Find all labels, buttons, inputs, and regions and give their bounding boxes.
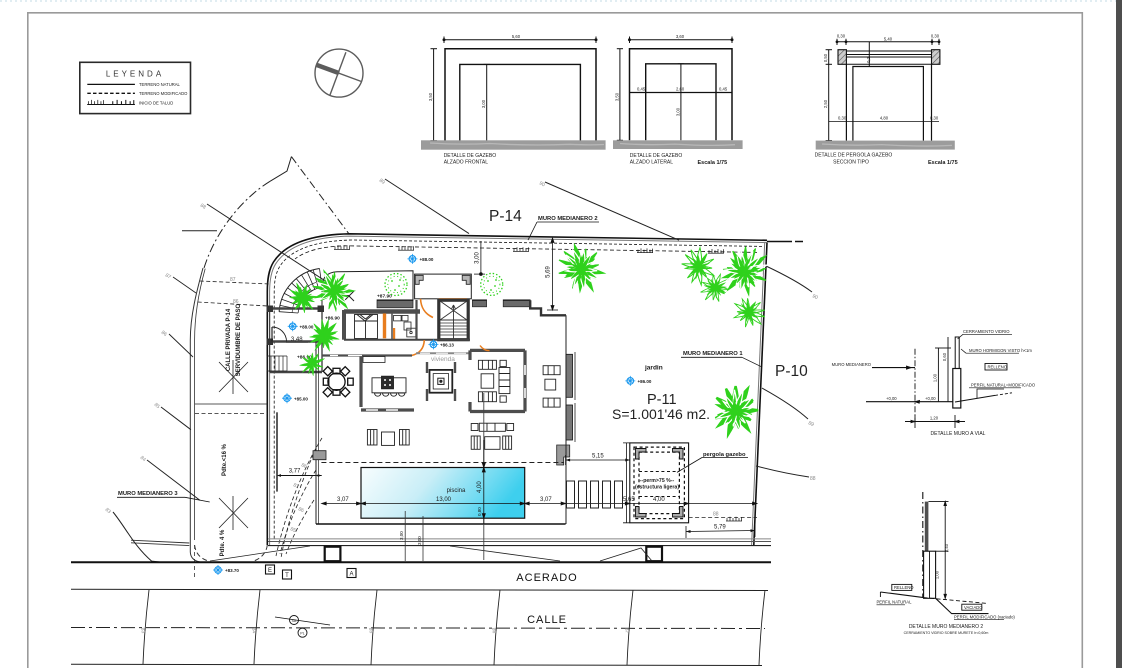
svg-text:SERVIDUMBRE DE PASO: SERVIDUMBRE DE PASO [236,303,242,376]
svg-text:0,30: 0,30 [837,34,846,39]
svg-text:ACERADO: ACERADO [516,572,577,584]
svg-text:TERRENO MODIFICADO: TERRENO MODIFICADO [139,91,188,96]
svg-text:+83.70: +83.70 [225,568,239,573]
svg-text:RELLENO: RELLENO [894,585,914,590]
svg-text:2,50: 2,50 [823,99,828,108]
svg-text:CERRAMIENTO VIDRIO SOBRE MURET: CERRAMIENTO VIDRIO SOBRE MURETE h<0,60m [904,631,989,635]
svg-text:PERFIL NATURAL=MODIFICADO: PERFIL NATURAL=MODIFICADO [971,383,1036,388]
svg-text:2,60: 2,60 [676,87,685,92]
svg-text:Pdte. 4 %: Pdte. 4 % [220,529,226,556]
svg-text:DETALLE DE PERGOLA GAZEBO: DETALLE DE PERGOLA GAZEBO [815,153,893,159]
svg-text:3,07: 3,07 [337,497,349,503]
svg-text:0,30: 0,30 [838,116,847,121]
svg-text:jardin: jardin [644,365,663,372]
svg-text:MURO MEDIANERO 2: MURO MEDIANERO 2 [538,216,598,222]
svg-text:PL: PL [300,632,304,636]
svg-text:TERRENO NATURAL: TERRENO NATURAL [139,82,181,87]
svg-text:S=1.001'46 m2.: S=1.001'46 m2. [612,406,710,422]
svg-text:vivienda: vivienda [431,356,455,363]
svg-text:PERFIL MODIFICADO (vaciado): PERFIL MODIFICADO (vaciado) [954,615,1015,620]
svg-text:3,00: 3,00 [676,107,681,116]
svg-text:(estructura ligera): (estructura ligera) [635,485,679,491]
svg-text:3,48: 3,48 [291,337,303,343]
svg-text:MURO HORMIGON VISTO h<1m: MURO HORMIGON VISTO h<1m [969,348,1032,353]
svg-text:+86.90: +86.90 [325,316,340,322]
svg-text:CALLE PRIVADA P-14: CALLE PRIVADA P-14 [226,308,232,371]
svg-text:P-14: P-14 [489,208,522,225]
svg-text:3,50: 3,50 [428,92,433,101]
svg-text:DETALLE MURO MEDIANERO 2: DETALLE MURO MEDIANERO 2 [909,624,984,630]
svg-text:+88.00: +88.00 [300,325,314,330]
svg-text:0,30: 0,30 [930,116,939,121]
svg-text:--perm>75 %--: --perm>75 %-- [640,478,675,484]
svg-text:MURO MEDIANERO 3: MURO MEDIANERO 3 [118,491,178,497]
svg-text:ALZADO FRONTAL: ALZADO FRONTAL [444,160,489,166]
svg-text:DETALLE DE GAZEBO: DETALLE DE GAZEBO [444,153,497,159]
svg-text:1,00: 1,00 [933,373,938,382]
svg-text:2,40: 2,40 [944,543,949,552]
svg-text:87: 87 [230,277,236,283]
svg-text:piscina: piscina [447,488,466,494]
svg-text:+0,00: +0,00 [925,396,936,401]
svg-text:P-10: P-10 [775,363,808,380]
svg-text:4,00: 4,00 [653,497,665,503]
svg-text:INICIO DE TALUD: INICIO DE TALUD [139,101,173,106]
svg-text:3,60: 3,60 [676,34,685,39]
svg-text:MURO MEDIANERO: MURO MEDIANERO [832,362,872,367]
svg-text:0,80: 0,80 [477,507,482,516]
svg-text:13,00: 13,00 [436,497,452,503]
svg-text:4,00: 4,00 [477,481,483,493]
svg-text:88: 88 [713,512,719,518]
svg-text:3,00: 3,00 [475,252,481,264]
svg-text:+87.90: +87.90 [377,294,392,300]
svg-text:0,45: 0,45 [719,87,728,92]
svg-text:Escala 1/75: Escala 1/75 [928,160,958,166]
svg-text:+88.00: +88.00 [420,257,434,262]
svg-text:ALZADO LATERAL: ALZADO LATERAL [630,160,673,166]
svg-text:RELLENO: RELLENO [988,364,1008,369]
svg-text:VACIADO: VACIADO [964,605,983,610]
svg-text:PERFIL NATURAL: PERFIL NATURAL [877,600,913,605]
svg-text:E: E [268,568,272,574]
svg-text:4,80: 4,80 [880,116,889,121]
svg-text:0,60: 0,60 [942,352,947,361]
svg-text:5,69: 5,69 [546,266,552,278]
svg-text:88: 88 [810,476,816,482]
svg-text:Escala 1/75: Escala 1/75 [698,160,728,166]
svg-text:SECCION TIPO: SECCION TIPO [833,160,869,166]
svg-text:1,20: 1,20 [930,416,939,421]
svg-text:DETALLE DE GAZEBO: DETALLE DE GAZEBO [630,153,683,159]
svg-text:0,2: 0,2 [866,56,871,62]
svg-text:+86.00: +86.00 [638,379,652,384]
svg-text:DETALLE MURO A VIAL: DETALLE MURO A VIAL [931,431,986,437]
svg-text:5,60: 5,60 [512,34,521,39]
svg-text:3,00: 3,00 [417,536,422,545]
svg-text:0,50: 0,50 [823,53,828,62]
svg-text:3,07: 3,07 [540,497,552,503]
svg-text:MURO MEDIANERO 1: MURO MEDIANERO 1 [683,351,743,357]
svg-text:3,00: 3,00 [481,99,486,108]
svg-text:5,15: 5,15 [592,454,604,460]
svg-text:0,30: 0,30 [931,34,940,39]
svg-text:0,45: 0,45 [637,87,646,92]
svg-text:CERRAMIENTO VIDRIO: CERRAMIENTO VIDRIO [963,329,1010,334]
svg-text:3,50: 3,50 [615,92,620,101]
svg-text:1,00: 1,00 [935,570,940,579]
svg-text:A: A [349,572,353,578]
svg-text:5,40: 5,40 [884,36,893,41]
svg-text:3,00: 3,00 [399,531,404,540]
svg-text:LEYENDA: LEYENDA [106,70,164,79]
svg-text:5,79: 5,79 [714,525,726,531]
svg-text:3,77: 3,77 [289,469,301,475]
svg-text:+86.13: +86.13 [440,343,454,348]
svg-text:+85.00: +85.00 [294,396,308,401]
svg-text:Pdte.<16 %: Pdte.<16 % [222,443,228,476]
svg-text:T: T [285,573,289,579]
svg-text:+0,00: +0,00 [886,396,897,401]
svg-text:CALLE: CALLE [527,614,567,626]
